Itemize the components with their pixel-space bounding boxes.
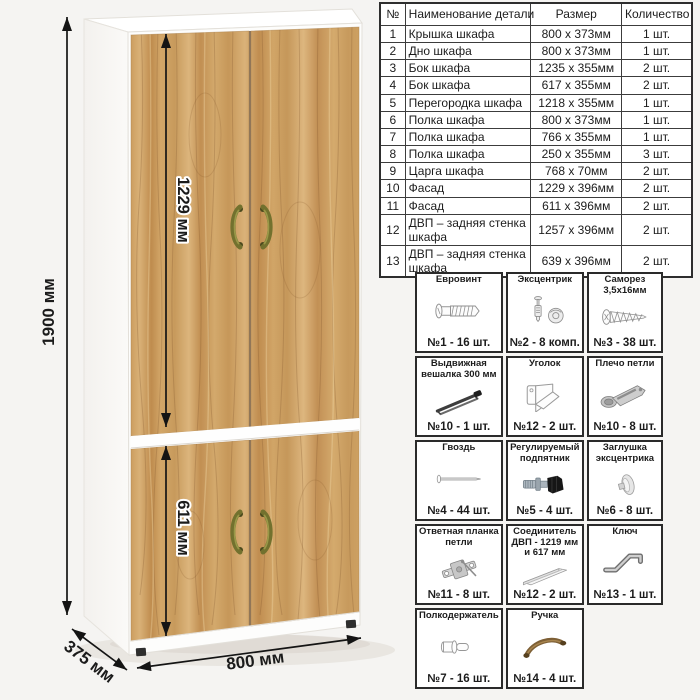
hardware-item-title: Гвоздь (442, 443, 475, 454)
hardware-item-count: №12 - 2 шт. (513, 421, 576, 434)
part-number: 1 (380, 26, 405, 43)
part-size: 800 х 373мм (531, 26, 622, 43)
part-name: Дно шкафа (405, 43, 531, 60)
hardware-item: Гвоздь №4 - 44 шт. (415, 440, 503, 521)
hardware-item-count: №7 - 16 шт. (427, 673, 490, 686)
column-header-number: № (380, 3, 405, 26)
hardware-item-count: №13 - 1 шт. (594, 589, 657, 602)
handle-icon (513, 630, 577, 664)
part-qty: 1 шт. (622, 43, 692, 60)
part-qty: 2 шт. (622, 77, 692, 94)
top-facade-label: 1229 мм (174, 177, 192, 243)
part-qty: 2 шт. (622, 180, 692, 197)
hardware-item-title: Ответная планка петли (419, 527, 499, 548)
part-number: 12 (380, 214, 405, 245)
part-size: 768 х 70мм (531, 163, 622, 180)
hardware-item: Эксцентрик №2 - 8 комп. (506, 272, 584, 353)
part-size: 800 х 373мм (531, 43, 622, 60)
part-row: 5Перегородка шкафа1218 х 355мм1 шт. (380, 94, 692, 111)
hardware-item-icon-slot (419, 622, 499, 673)
self-tapping-screw-icon (593, 300, 657, 334)
part-row: 10Фасад1229 х 396мм2 шт. (380, 180, 692, 197)
cam-cover-icon (593, 468, 657, 502)
hardware-item-icon-slot (510, 464, 580, 505)
part-qty: 1 шт. (622, 26, 692, 43)
part-size: 1235 х 355мм (531, 60, 622, 77)
hardware-item-count: №10 - 1 шт. (427, 421, 490, 434)
hardware-item-title: Ручка (531, 611, 558, 622)
part-name: Полка шкафа (405, 111, 531, 128)
hardware-item-title: Плечо петли (595, 359, 654, 370)
part-qty: 2 шт. (622, 60, 692, 77)
door-bottom-right (251, 431, 359, 626)
door-top-right (251, 27, 359, 427)
hardware-item-title: Ключ (612, 527, 637, 538)
part-name: Царга шкафа (405, 163, 531, 180)
hardware-item-icon-slot (419, 286, 499, 337)
hardware-item: Ключ №13 - 1 шт. (587, 524, 663, 605)
part-row: 8Полка шкафа250 х 355мм3 шт. (380, 146, 692, 163)
height-label: 1900 мм (39, 278, 58, 346)
hdf-connector-icon (513, 557, 577, 591)
part-row: 6Полка шкафа800 х 373мм1 шт. (380, 111, 692, 128)
part-row: 3Бок шкафа1235 х 355мм2 шт. (380, 60, 692, 77)
hardware-item-title: Полкодержатель (419, 611, 499, 622)
part-row: 9Царга шкафа768 х 70мм2 шт. (380, 163, 692, 180)
parts-table-body: 1Крышка шкафа800 х 373мм1 шт.2Дно шкафа8… (380, 26, 692, 278)
part-number: 7 (380, 128, 405, 145)
part-row: 2Дно шкафа800 х 373мм1 шт. (380, 43, 692, 60)
part-number: 11 (380, 197, 405, 214)
hardware-grid: Евровинт №1 - 16 шт.Эксцентрик №2 - 8 ко… (415, 272, 663, 689)
part-name: Полка шкафа (405, 128, 531, 145)
hardware-item-icon-slot (510, 622, 580, 673)
hardware-item-count: №4 - 44 шт. (427, 505, 490, 518)
part-size: 1218 х 355мм (531, 94, 622, 111)
column-header-size: Размер (531, 3, 622, 26)
part-size: 611 х 396мм (531, 197, 622, 214)
hardware-item-count: №5 - 4 шт. (517, 505, 573, 518)
hardware-item: Выдвижная вешалка 300 мм №10 - 1 шт. (415, 356, 503, 437)
part-name: Бок шкафа (405, 60, 531, 77)
part-size: 250 х 355мм (531, 146, 622, 163)
hardware-item-icon-slot (591, 464, 659, 505)
hardware-item-title: Выдвижная вешалка 300 мм (419, 359, 499, 380)
hardware-item-count: №2 - 8 комп. (510, 337, 580, 350)
confirmat-screw-icon (427, 294, 491, 328)
assembly-sheet: 1900 мм 1229 мм 611 мм 800 мм 375 мм № Н… (0, 0, 700, 700)
part-number: 4 (380, 77, 405, 94)
hinge-arm-icon (593, 378, 657, 412)
hardware-item-count: №11 - 8 шт. (428, 589, 490, 602)
hex-key-icon (593, 546, 657, 580)
hardware-item-title: Эксцентрик (517, 275, 572, 286)
hardware-item-title: Саморез 3,5х16мм (591, 275, 659, 296)
wardrobe-diagram: 1900 мм 1229 мм 611 мм 800 мм 375 мм (0, 0, 420, 700)
parts-table-header-row: № Наименование детали Размер Количество (380, 3, 692, 26)
parts-table: № Наименование детали Размер Количество … (379, 2, 693, 278)
part-size: 617 х 355мм (531, 77, 622, 94)
part-row: 1Крышка шкафа800 х 373мм1 шт. (380, 26, 692, 43)
part-number: 3 (380, 60, 405, 77)
column-header-name: Наименование детали (405, 3, 531, 26)
hardware-item-icon-slot (419, 548, 499, 589)
part-qty: 2 шт. (622, 214, 692, 245)
hardware-item-count: №10 - 8 шт. (594, 421, 657, 434)
hardware-item-icon-slot (591, 370, 659, 421)
hardware-item-title: Евровинт (436, 275, 482, 286)
part-size: 766 х 355мм (531, 128, 622, 145)
part-qty: 2 шт. (622, 197, 692, 214)
hardware-item: Плечо петли №10 - 8 шт. (587, 356, 663, 437)
part-qty: 1 шт. (622, 94, 692, 111)
hardware-item-icon-slot (419, 454, 499, 505)
part-row: 4Бок шкафа617 х 355мм2 шт. (380, 77, 692, 94)
hardware-item-count: №1 - 16 шт. (427, 337, 490, 350)
column-header-qty: Количество (622, 3, 692, 26)
corner-bracket-icon (513, 378, 577, 412)
hardware-item-icon-slot (510, 370, 580, 421)
part-name: Бок шкафа (405, 77, 531, 94)
hardware-item-icon-slot (591, 296, 659, 337)
hardware-item-icon-slot (419, 380, 499, 421)
hardware-item-title: Заглушка эксцентрика (591, 443, 659, 464)
hardware-item: Евровинт №1 - 16 шт. (415, 272, 503, 353)
hardware-item-title: Уголок (529, 359, 560, 370)
part-size: 800 х 373мм (531, 111, 622, 128)
hardware-item-count: №14 - 4 шт. (513, 673, 576, 686)
hardware-item-icon-slot (591, 538, 659, 589)
dimension-height: 1900 мм (39, 17, 67, 615)
part-row: 12ДВП – задняя стенка шкафа1257 х 396мм2… (380, 214, 692, 245)
hardware-item: Ручка №14 - 4 шт. (506, 608, 584, 689)
pull-out-hanger-icon (427, 384, 491, 418)
part-row: 11Фасад611 х 396мм2 шт. (380, 197, 692, 214)
part-name: ДВП – задняя стенка шкафа (405, 214, 531, 245)
part-name: Фасад (405, 180, 531, 197)
part-qty: 3 шт. (622, 146, 692, 163)
hardware-item-icon-slot (510, 286, 580, 337)
parts-table-section: № Наименование детали Размер Количество … (379, 2, 693, 278)
hardware-item-count: №6 - 8 шт. (597, 505, 653, 518)
shelf-pin-icon (427, 630, 491, 664)
hardware-item-icon-slot (510, 559, 580, 589)
part-number: 8 (380, 146, 405, 163)
hardware-item: Заглушка эксцентрика №6 - 8 шт. (587, 440, 663, 521)
part-number: 5 (380, 94, 405, 111)
hardware-item: Регулируемый подпятник №5 - 4 шт. (506, 440, 584, 521)
hardware-item: Уголок №12 - 2 шт. (506, 356, 584, 437)
nail-icon (427, 462, 491, 496)
part-name: Фасад (405, 197, 531, 214)
hardware-item: Полкодержатель №7 - 16 шт. (415, 608, 503, 689)
hardware-item: Ответная планка петли №11 - 8 шт. (415, 524, 503, 605)
hardware-item-count: №3 - 38 шт. (594, 337, 657, 350)
part-number: 9 (380, 163, 405, 180)
bottom-facade-label: 611 мм (174, 500, 192, 556)
part-number: 6 (380, 111, 405, 128)
hardware-item-title: Соединитель ДВП - 1219 мм и 617 мм (510, 527, 580, 559)
part-qty: 1 шт. (622, 111, 692, 128)
part-name: Перегородка шкафа (405, 94, 531, 111)
part-name: Полка шкафа (405, 146, 531, 163)
part-name: Крышка шкафа (405, 26, 531, 43)
part-number: 13 (380, 246, 405, 278)
part-size: 1257 х 396мм (531, 214, 622, 245)
hardware-item-title: Регулируемый подпятник (510, 443, 580, 464)
part-row: 7Полка шкафа766 х 355мм1 шт. (380, 128, 692, 145)
part-number: 10 (380, 180, 405, 197)
hinge-mounting-plate-icon (427, 552, 491, 586)
part-qty: 1 шт. (622, 128, 692, 145)
part-number: 2 (380, 43, 405, 60)
part-qty: 2 шт. (622, 163, 692, 180)
cam-lock-icon (513, 294, 577, 328)
part-size: 1229 х 396мм (531, 180, 622, 197)
hardware-item: Соединитель ДВП - 1219 мм и 617 мм №12 -… (506, 524, 584, 605)
hardware-item: Саморез 3,5х16мм №3 - 38 шт. (587, 272, 663, 353)
hardware-item-count: №12 - 2 шт. (513, 589, 576, 602)
adjustable-foot-icon (513, 468, 577, 502)
